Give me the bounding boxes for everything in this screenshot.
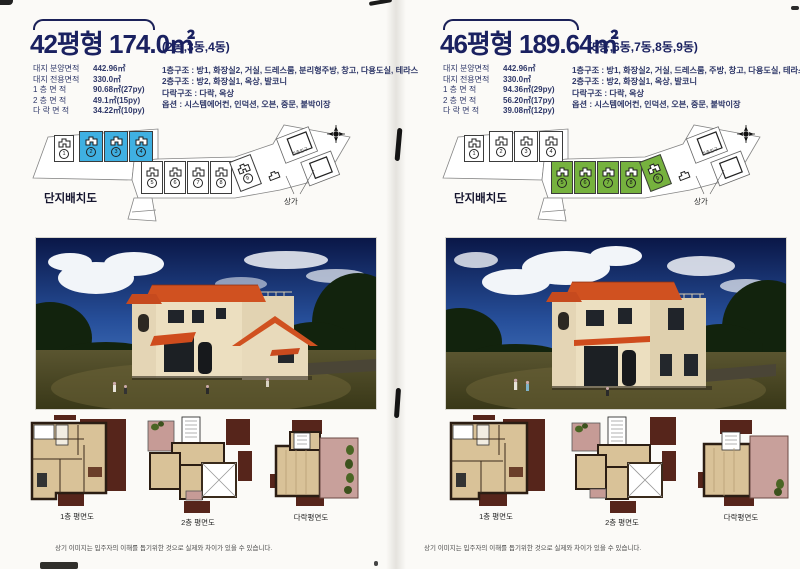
panel-type-46: 46평형 189.64㎡ (5동,6동,7동,8동,9동) 대지 분양면적442… bbox=[400, 0, 800, 569]
lot-number: 8 bbox=[216, 178, 226, 188]
site-lot-6: 6 bbox=[574, 161, 596, 194]
lot-house-icon bbox=[85, 136, 98, 146]
scan-mark-top-left bbox=[0, 0, 13, 5]
site-lot-grid: 123456789 bbox=[438, 124, 773, 230]
floor-plan-1f: 1층 평면도 bbox=[24, 415, 130, 522]
floor-plan-2f: 2층 평면도 bbox=[142, 413, 254, 528]
spec-value: 330.0㎡ bbox=[93, 75, 121, 86]
spec-row: 1 층 면 적90.68㎡(27py) bbox=[33, 85, 173, 96]
lot-house-icon bbox=[215, 167, 228, 177]
spec-value: 39.08㎡(12py) bbox=[503, 106, 555, 117]
floor-plan-label: 1층 평면도 bbox=[24, 511, 130, 522]
structure-line: 2층구조 : 방2, 화장실1, 옥상, 발코니 bbox=[162, 76, 418, 87]
lot-house-icon bbox=[468, 138, 481, 148]
floor-plan-label: 다락평면도 bbox=[692, 512, 790, 523]
spec-row: 대지 전용면적330.0㎡ bbox=[33, 75, 173, 86]
lot-house-icon bbox=[556, 167, 569, 177]
structure-list: 1층구조 : 방1, 화장실2, 거실, 드레스룸, 주방, 창고, 다용도실,… bbox=[572, 65, 800, 111]
spec-row: 다 락 면 적39.08㎡(12py) bbox=[443, 106, 583, 117]
floor-plan-2f: 2층 평면도 bbox=[566, 413, 678, 528]
lot-house-icon bbox=[110, 136, 123, 146]
shop-label: 상가 bbox=[284, 196, 298, 207]
spec-row: 대지 분양면적442.96㎡ bbox=[33, 64, 173, 75]
spec-label: 1 층 면 적 bbox=[443, 85, 503, 96]
spec-row: 2 층 면 적56.20㎡(17py) bbox=[443, 96, 583, 107]
structure-line: 다락구조 : 다락, 옥상 bbox=[162, 88, 418, 99]
spec-label: 2 층 면 적 bbox=[33, 96, 93, 107]
structure-line: 1층구조 : 방1, 화장실2, 거실, 드레스룸, 주방, 창고, 다용도실,… bbox=[572, 65, 800, 76]
spec-value: 330.0㎡ bbox=[503, 75, 531, 86]
structure-line: 2층구조 : 방2, 화장실1, 옥상, 발코니 bbox=[572, 76, 800, 87]
site-lot-5: 5 bbox=[551, 161, 573, 194]
site-lot-grid: 123456789 bbox=[28, 124, 363, 230]
footnote: 상기 이미지는 입주자의 이해를 돕기위한 것으로 실제와 차이가 있을 수 있… bbox=[424, 542, 641, 552]
lot-number: 3 bbox=[521, 147, 531, 157]
lot-house-icon bbox=[146, 167, 159, 177]
lot-number: 2 bbox=[496, 147, 506, 157]
lot-house-icon bbox=[192, 167, 205, 177]
structure-list: 1층구조 : 방1, 화장실2, 거실, 드레스룸, 분리형주방, 창고, 다용… bbox=[162, 65, 418, 111]
spec-row: 1 층 면 적94.36㎡(29py) bbox=[443, 85, 583, 96]
shop-label: 상가 bbox=[694, 196, 708, 207]
scan-mark-bottom-center bbox=[374, 561, 378, 566]
spec-value: 34.22㎡(10py) bbox=[93, 106, 145, 117]
spec-label: 다 락 면 적 bbox=[33, 106, 93, 117]
floor-plan-attic: 다락평면도 bbox=[262, 418, 360, 523]
lot-number: 7 bbox=[603, 178, 613, 188]
page-gutter-shadow bbox=[386, 0, 406, 569]
brochure-scan-page: 42평형 174.0㎡ (2동,3동,4동) 대지 분양면적442.96㎡ 대지… bbox=[0, 0, 800, 569]
floor-plan-attic: 다락평면도 bbox=[692, 418, 790, 523]
lot-number: 3 bbox=[111, 147, 121, 157]
floor-plan-label: 다락평면도 bbox=[262, 512, 360, 523]
site-lot-1: 1 bbox=[54, 135, 74, 162]
spec-row: 다 락 면 적34.22㎡(10py) bbox=[33, 106, 173, 117]
spec-label: 1 층 면 적 bbox=[33, 85, 93, 96]
site-plan-label: 단지배치도 bbox=[454, 190, 507, 206]
spec-row: 2 층 면 적49.1㎡(15py) bbox=[33, 96, 173, 107]
page-subtitle: (2동,3동,4동) bbox=[162, 38, 230, 55]
spec-label: 대지 전용면적 bbox=[443, 75, 503, 86]
floor-plan-1f-drawing bbox=[24, 415, 130, 507]
spec-value: 94.36㎡(29py) bbox=[503, 85, 555, 96]
lot-number: 8 bbox=[626, 178, 636, 188]
floor-plan-2f-drawing bbox=[566, 413, 678, 513]
site-lot-2: 2 bbox=[489, 131, 513, 162]
site-lot-3: 3 bbox=[514, 131, 538, 162]
lot-number: 6 bbox=[170, 178, 180, 188]
lot-house-icon bbox=[625, 167, 638, 177]
lot-number: 9 bbox=[651, 172, 664, 185]
lot-number: 1 bbox=[59, 149, 69, 159]
scan-mark-top-right bbox=[791, 6, 799, 10]
site-lot-4: 4 bbox=[129, 131, 153, 162]
lot-house-icon bbox=[58, 138, 71, 148]
floor-plan-row: 1층 평면도 bbox=[0, 410, 400, 535]
spec-row: 대지 전용면적330.0㎡ bbox=[443, 75, 583, 86]
structure-line: 옵션 : 시스템에어컨, 인덕션, 오븐, 중문, 붙박이장 bbox=[572, 99, 800, 110]
floor-plan-label: 2층 평면도 bbox=[566, 517, 678, 528]
spec-label: 대지 분양면적 bbox=[443, 64, 503, 75]
spec-value: 56.20㎡(17py) bbox=[503, 96, 555, 107]
house-rendering-image bbox=[35, 237, 377, 410]
site-lot-7: 7 bbox=[187, 161, 209, 194]
lot-house-icon bbox=[602, 167, 615, 177]
spec-label: 대지 분양면적 bbox=[33, 64, 93, 75]
spec-value: 90.68㎡(27py) bbox=[93, 85, 145, 96]
panel-type-42: 42평형 174.0㎡ (2동,3동,4동) 대지 분양면적442.96㎡ 대지… bbox=[0, 0, 400, 569]
spec-value: 442.96㎡ bbox=[503, 64, 535, 75]
floor-plan-2f-drawing bbox=[142, 413, 254, 513]
site-lot-9: 9 bbox=[639, 154, 672, 192]
structure-line: 다락구조 : 다락, 옥상 bbox=[572, 88, 800, 99]
spec-value: 49.1㎡(15py) bbox=[93, 96, 140, 107]
lot-house-icon bbox=[495, 136, 508, 146]
scan-smudge-bottom-left bbox=[40, 562, 78, 569]
spec-value: 442.96㎡ bbox=[93, 64, 125, 75]
spec-label: 2 층 면 적 bbox=[443, 96, 503, 107]
footnote: 상기 이미지는 입주자의 이해를 돕기위한 것으로 실제와 차이가 있을 수 있… bbox=[55, 542, 272, 552]
lot-house-icon bbox=[545, 136, 558, 146]
site-lot-1: 1 bbox=[464, 135, 484, 162]
site-plan: 123456789 단지배치도 상가 주출입구 bbox=[438, 124, 773, 230]
lot-house-icon bbox=[135, 136, 148, 146]
site-lot-8: 8 bbox=[210, 161, 232, 194]
site-lot-8: 8 bbox=[620, 161, 642, 194]
area-spec-list: 대지 분양면적442.96㎡ 대지 전용면적330.0㎡ 1 층 면 적90.6… bbox=[33, 64, 173, 117]
page-subtitle: (5동,6동,7동,8동,9동) bbox=[588, 38, 698, 55]
lot-number: 9 bbox=[241, 172, 254, 185]
site-lot-3: 3 bbox=[104, 131, 128, 162]
site-lot-7: 7 bbox=[597, 161, 619, 194]
lot-house-icon bbox=[169, 167, 182, 177]
site-lot-5: 5 bbox=[141, 161, 163, 194]
site-lot-4: 4 bbox=[539, 131, 563, 162]
lot-number: 2 bbox=[86, 147, 96, 157]
floor-plan-label: 1층 평면도 bbox=[443, 511, 549, 522]
lot-number: 4 bbox=[546, 147, 556, 157]
spec-label: 다 락 면 적 bbox=[443, 106, 503, 117]
floor-plan-label: 2층 평면도 bbox=[142, 517, 254, 528]
lot-number: 5 bbox=[557, 178, 567, 188]
lot-number: 5 bbox=[147, 178, 157, 188]
lot-number: 4 bbox=[136, 147, 146, 157]
floor-plan-row: 1층 평면도 bbox=[410, 410, 800, 535]
floor-plan-1f: 1층 평면도 bbox=[443, 415, 549, 522]
lot-number: 6 bbox=[580, 178, 590, 188]
floor-plan-attic-drawing bbox=[262, 418, 360, 508]
house-rendering-image bbox=[445, 237, 787, 410]
site-plan-label: 단지배치도 bbox=[44, 190, 97, 206]
area-spec-list: 대지 분양면적442.96㎡ 대지 전용면적330.0㎡ 1 층 면 적94.3… bbox=[443, 64, 583, 117]
site-lot-2: 2 bbox=[79, 131, 103, 162]
site-lot-6: 6 bbox=[164, 161, 186, 194]
spec-row: 대지 분양면적442.96㎡ bbox=[443, 64, 583, 75]
site-plan: 123456789 단지배치도 상가 주출입구 bbox=[28, 124, 363, 230]
floor-plan-attic-drawing bbox=[692, 418, 790, 508]
structure-line: 옵션 : 시스템에어컨, 인덕션, 오븐, 중문, 붙박이장 bbox=[162, 99, 418, 110]
lot-house-icon bbox=[579, 167, 592, 177]
lot-house-icon bbox=[520, 136, 533, 146]
spec-label: 대지 전용면적 bbox=[33, 75, 93, 86]
site-lot-9: 9 bbox=[229, 154, 262, 192]
lot-number: 7 bbox=[193, 178, 203, 188]
structure-line: 1층구조 : 방1, 화장실2, 거실, 드레스룸, 분리형주방, 창고, 다용… bbox=[162, 65, 418, 76]
floor-plan-1f-drawing bbox=[443, 415, 549, 507]
lot-number: 1 bbox=[469, 149, 479, 159]
